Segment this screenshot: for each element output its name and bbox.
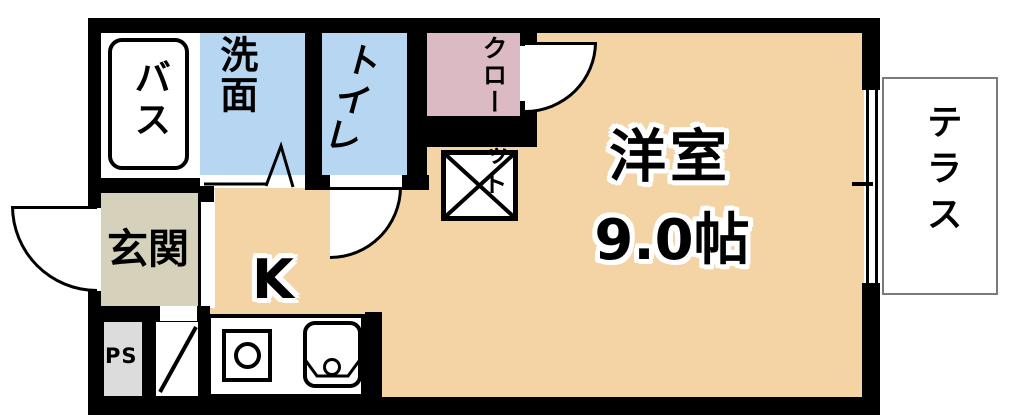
wall (88, 178, 200, 193)
washer-space-opening (160, 306, 197, 321)
wall (305, 32, 322, 190)
bath-room-label: バス (128, 58, 169, 142)
wall (88, 18, 880, 33)
entrance-step-strip (201, 190, 215, 308)
wall (862, 18, 880, 90)
window-icon (875, 88, 878, 285)
main-room-label: 洋室 (585, 126, 755, 189)
wall (88, 397, 880, 415)
main-room-size-label: 9.0帖 (572, 210, 772, 272)
sink-drain-icon (323, 358, 341, 376)
closet-label: クローゼット (428, 35, 514, 119)
wall (407, 116, 537, 147)
entrance-label: 玄関 (107, 227, 189, 272)
wall (407, 32, 427, 190)
window-latch-mark (852, 182, 873, 186)
wall (305, 175, 331, 190)
wall (862, 283, 880, 397)
entrance-door-swing-icon (11, 206, 97, 292)
washing-machine-space (156, 322, 198, 396)
kitchen-label: K (252, 250, 294, 309)
washroom-label: 洗面 (214, 35, 256, 115)
stove-burner-icon (234, 342, 261, 369)
sink-icon (303, 321, 362, 388)
window-icon (866, 88, 869, 285)
wall (365, 312, 382, 398)
terrace-label: テラス (921, 103, 961, 241)
entrance-step-edge (198, 193, 201, 308)
pipe-space-label: PS (105, 345, 138, 368)
floor-plan: バス 洗面 トイレ クローゼット 玄関 K 洋室 9.0帖 テラス PS (0, 0, 1024, 420)
